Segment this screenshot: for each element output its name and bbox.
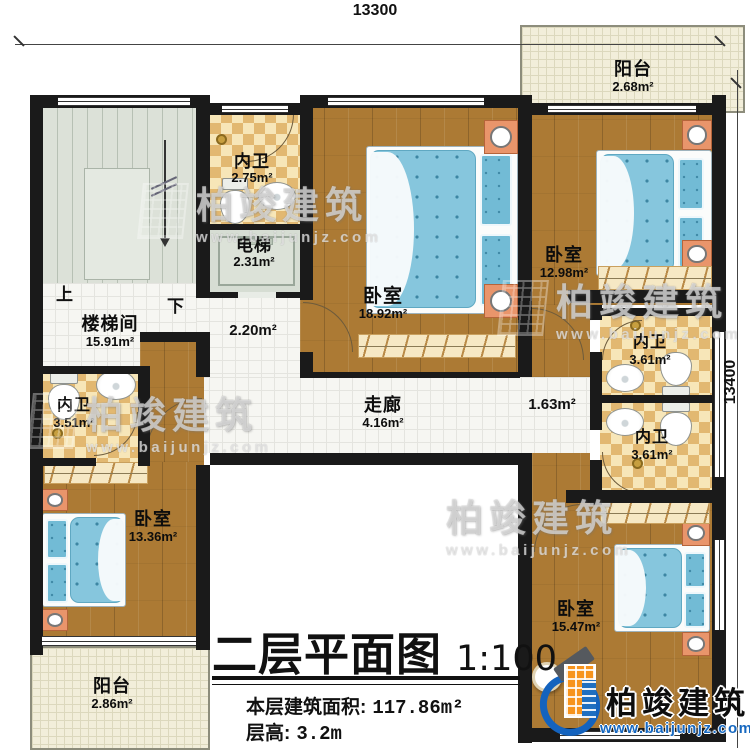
floor-drain: [216, 134, 227, 145]
watermark-building-icon: [387, 496, 439, 552]
floor-height-label: 层高:: [246, 718, 290, 745]
wardrobe: [358, 334, 516, 358]
floor-area-label: 本层建筑面积:: [246, 692, 366, 719]
label-bath-left: 内卫 3.51m²: [34, 396, 114, 432]
wall-segment: [30, 95, 43, 655]
plan-title: 二层平面图 1:100: [212, 618, 557, 683]
nightstand-knob: [687, 525, 705, 542]
wall-segment: [300, 372, 520, 378]
window-segment: [222, 105, 288, 113]
label-bedroom-left: 卧室 13.36m²: [103, 506, 203, 548]
room-name: 楼梯间: [82, 314, 139, 335]
wall-segment: [712, 95, 726, 307]
vestibule-area-text: 1.63m²: [528, 396, 576, 413]
stairs-down-text: 下: [167, 297, 184, 316]
room-area: 15.47m²: [552, 620, 600, 635]
room-area: 15.91m²: [86, 335, 134, 350]
room-area: 2.86m²: [91, 697, 132, 712]
nightstand: [484, 120, 518, 154]
bed-pillow: [684, 552, 706, 588]
label-balcony-top-right: 阳台 2.68m²: [583, 55, 683, 99]
room-name: 卧室: [363, 286, 403, 308]
dimension-value-top: 13300: [337, 2, 413, 22]
wall-segment: [30, 366, 140, 374]
wall-segment: [590, 352, 602, 430]
room-name: 内卫: [57, 397, 91, 415]
window-segment: [58, 97, 190, 106]
room-area: 3.51m²: [53, 416, 94, 431]
wall-segment: [568, 290, 712, 303]
elevator-door-gap: [238, 292, 276, 298]
plan-title-text: 二层平面图: [212, 618, 442, 683]
room-name: 走廊: [364, 395, 402, 416]
wall-segment: [196, 630, 210, 650]
room-name: 卧室: [557, 599, 595, 620]
room-area: 3.61m²: [631, 448, 672, 463]
label-balcony-bottom-left: 阳台 2.86m²: [62, 672, 162, 716]
floor-height-value: 3.2m: [296, 723, 342, 745]
wall-segment: [210, 224, 303, 230]
company-logo: 柏竣建筑 www.baijunjz.com: [538, 648, 750, 754]
room-area: 2.75m²: [231, 171, 272, 186]
dimension-value-right: 13400: [722, 342, 742, 422]
room-area: 3.61m²: [629, 353, 670, 368]
label-bath-right-2: 内卫 3.61m²: [612, 428, 692, 464]
label-stairwell: 楼梯间 15.91m²: [55, 310, 165, 354]
bed-pillow: [678, 158, 704, 210]
label-bedroom-center: 卧室 18.92m²: [333, 282, 433, 326]
wall-segment: [196, 340, 210, 377]
wall-segment: [42, 458, 96, 466]
floor-area-line: 本层建筑面积: 117.86m²: [246, 692, 464, 719]
dimension-line-top: [15, 44, 722, 45]
logo-website: www.baijunjz.com: [600, 720, 750, 737]
wall-segment: [196, 465, 210, 640]
room-name: 内卫: [635, 429, 669, 447]
label-stairs-up: 上: [56, 280, 73, 305]
balcony-door-window: [42, 636, 196, 646]
toilet-tank: [662, 402, 690, 412]
title-underline-thick: [212, 676, 520, 680]
nightstand: [42, 609, 68, 631]
balcony-door-window: [548, 105, 696, 113]
floor-area-value: 117.86m²: [372, 697, 463, 719]
label-vestibule-area: 1.63m²: [512, 396, 592, 413]
wall-segment: [518, 95, 532, 377]
wall-segment: [600, 308, 712, 316]
floor-plan-canvas: 阳台 2.68m² 内卫 2.75m² 电梯 2.31m² 楼梯间 15.91m…: [0, 0, 750, 754]
title-underline-thin: [212, 684, 520, 685]
nightstand-knob: [687, 125, 707, 145]
room-name: 电梯: [236, 236, 272, 256]
wall-segment: [138, 366, 150, 466]
label-bath-right-1: 内卫 3.61m²: [610, 333, 690, 369]
wall-segment: [600, 395, 712, 403]
wall-segment: [210, 453, 532, 465]
room-name: 内卫: [633, 334, 667, 352]
bed-pillow: [480, 154, 512, 226]
floor-height-line: 层高: 3.2m: [246, 718, 342, 745]
nightstand: [682, 120, 712, 150]
nightstand: [484, 284, 518, 318]
room-area: 13.36m²: [129, 530, 177, 545]
window-segment: [328, 97, 484, 106]
label-bedroom-top-right: 卧室 12.98m²: [514, 242, 614, 284]
room-area: 18.92m²: [359, 307, 407, 322]
wall-segment: [196, 108, 210, 298]
room-area: 4.16m²: [362, 416, 403, 431]
nightstand-knob: [687, 245, 707, 263]
room-area: 12.98m²: [540, 266, 588, 281]
dimension-top-text: 13300: [353, 2, 398, 19]
nightstand: [682, 240, 712, 268]
stairs-up-text: 上: [56, 285, 73, 304]
bed-pillow: [46, 519, 68, 559]
bed-pillow: [46, 563, 68, 603]
wardrobe: [598, 266, 712, 290]
wall-segment: [300, 108, 313, 300]
room-name: 内卫: [234, 152, 270, 172]
nightstand-knob: [47, 613, 64, 627]
nightstand: [42, 489, 68, 511]
wall-segment: [566, 490, 726, 503]
label-bath-top-left: 内卫 2.75m²: [212, 148, 292, 190]
hall-area-text: 2.20m²: [229, 322, 277, 339]
window-segment: [714, 540, 725, 630]
nightstand-knob: [47, 493, 64, 507]
nightstand-knob: [490, 290, 512, 312]
stair-landing: [84, 168, 150, 280]
room-name: 阳台: [93, 676, 131, 697]
bed-pillow: [684, 592, 706, 628]
label-stairs-down: 下: [167, 292, 184, 317]
label-hall-area: 2.20m²: [213, 322, 293, 339]
logo-building-icon-blue: [582, 680, 596, 718]
dimension-right-text: 13400: [722, 360, 739, 405]
stair-arrow-head: [160, 238, 170, 247]
wardrobe: [600, 502, 710, 524]
logo-company-name: 柏竣建筑: [606, 678, 750, 723]
room-area: 2.68m²: [612, 80, 653, 95]
room-area: 2.31m²: [233, 255, 274, 270]
label-elevator: 电梯 2.31m²: [214, 233, 294, 273]
room-name: 阳台: [614, 59, 652, 80]
nightstand-knob: [490, 126, 512, 148]
room-name: 卧室: [134, 509, 172, 530]
room-name: 卧室: [545, 245, 583, 266]
label-corridor: 走廊 4.16m²: [333, 393, 433, 433]
